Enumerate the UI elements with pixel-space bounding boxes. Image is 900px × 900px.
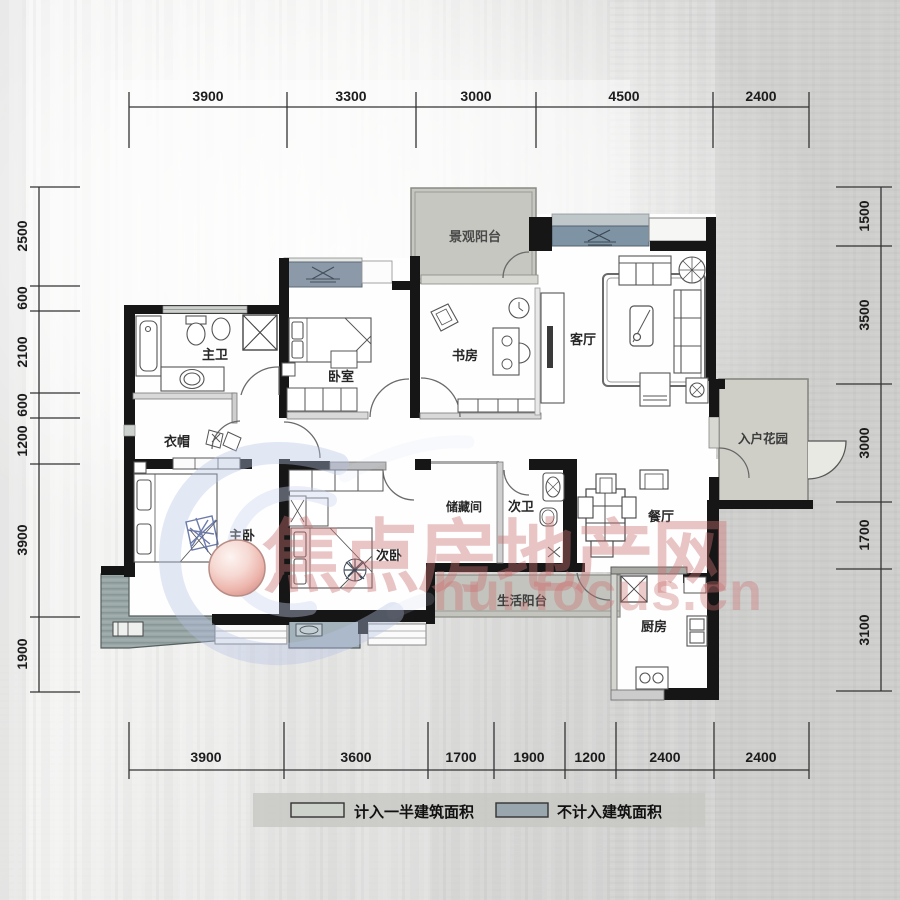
svg-text:2400: 2400 — [649, 749, 680, 765]
svg-text:3500: 3500 — [856, 299, 872, 330]
svg-text:3900: 3900 — [192, 88, 223, 104]
svg-text:3100: 3100 — [856, 614, 872, 645]
svg-text:客厅: 客厅 — [570, 332, 596, 347]
svg-text:主卫: 主卫 — [202, 347, 228, 362]
svg-text:4500: 4500 — [608, 88, 639, 104]
svg-text:3600: 3600 — [340, 749, 371, 765]
svg-text:储藏间: 储藏间 — [446, 499, 482, 514]
svg-text:1200: 1200 — [14, 425, 30, 456]
svg-text:书房: 书房 — [452, 348, 478, 363]
svg-text:1700: 1700 — [856, 519, 872, 550]
svg-text:1700: 1700 — [445, 749, 476, 765]
svg-text:600: 600 — [14, 393, 30, 417]
svg-text:3900: 3900 — [190, 749, 221, 765]
svg-text:600: 600 — [14, 286, 30, 310]
svg-text:hui.focus.cn: hui.focus.cn — [433, 562, 763, 622]
svg-text:3000: 3000 — [460, 88, 491, 104]
svg-text:2500: 2500 — [14, 220, 30, 251]
svg-text:卧室: 卧室 — [328, 369, 354, 384]
svg-text:3900: 3900 — [14, 524, 30, 555]
svg-text:计入一半建筑面积: 计入一半建筑面积 — [354, 803, 474, 821]
svg-text:不计入建筑面积: 不计入建筑面积 — [557, 803, 662, 821]
svg-text:次卫: 次卫 — [508, 499, 534, 514]
svg-text:1200: 1200 — [574, 749, 605, 765]
svg-text:1500: 1500 — [856, 200, 872, 231]
svg-text:1900: 1900 — [513, 749, 544, 765]
svg-text:2400: 2400 — [745, 749, 776, 765]
svg-text:2100: 2100 — [14, 336, 30, 367]
svg-text:2400: 2400 — [745, 88, 776, 104]
svg-text:衣帽: 衣帽 — [164, 434, 190, 449]
svg-text:1900: 1900 — [14, 638, 30, 669]
svg-text:入户花园: 入户花园 — [738, 431, 788, 446]
svg-text:3000: 3000 — [856, 427, 872, 458]
svg-text:景观阳台: 景观阳台 — [449, 229, 501, 244]
svg-text:3300: 3300 — [335, 88, 366, 104]
